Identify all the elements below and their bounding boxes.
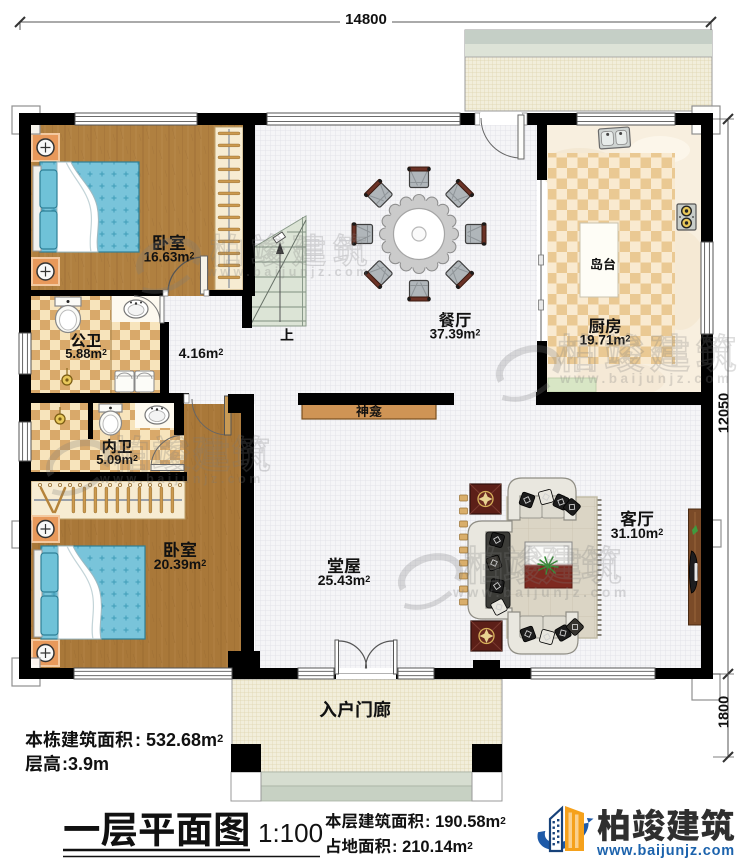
svg-text:4.16m2: 4.16m2 <box>179 345 224 361</box>
svg-text:: 210.14m2: : 210.14m2 <box>392 838 473 856</box>
svg-text:12050: 12050 <box>717 393 733 433</box>
svg-text:5.88m2: 5.88m2 <box>65 346 107 361</box>
svg-text:www.baijunjz.com: www.baijunjz.com <box>206 265 371 279</box>
svg-text:: 190.58m2: : 190.58m2 <box>425 813 506 831</box>
svg-text:14800: 14800 <box>345 11 387 28</box>
svg-text:37.39m2: 37.39m2 <box>430 326 481 341</box>
svg-text::3.9m: :3.9m <box>62 754 109 774</box>
svg-text:25.43m2: 25.43m2 <box>318 572 371 588</box>
svg-text:20.39m2: 20.39m2 <box>154 556 207 572</box>
svg-text:1800: 1800 <box>717 696 733 728</box>
svg-text:www.baijunjz.com: www.baijunjz.com <box>559 371 733 386</box>
svg-text:www.baijunjz.com: www.baijunjz.com <box>99 472 264 486</box>
svg-text:: 532.68m2: : 532.68m2 <box>135 730 223 750</box>
svg-text:31.10m2: 31.10m2 <box>611 525 664 541</box>
svg-text:1:100: 1:100 <box>258 818 323 848</box>
svg-text:www.baijunjz.com: www.baijunjz.com <box>596 843 735 859</box>
svg-text:www.baijunjz.com: www.baijunjz.com <box>452 584 630 600</box>
